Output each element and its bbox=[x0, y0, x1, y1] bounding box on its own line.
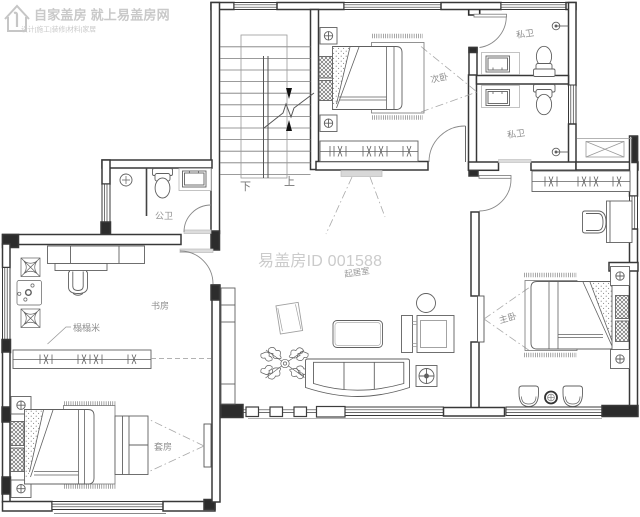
svg-text:榻榻米: 榻榻米 bbox=[73, 322, 100, 333]
svg-text:书房: 书房 bbox=[151, 300, 169, 311]
svg-text:套房: 套房 bbox=[154, 441, 172, 452]
svg-text:公卫: 公卫 bbox=[155, 211, 173, 221]
svg-text:上: 上 bbox=[284, 175, 295, 188]
svg-text:易盖房ID 001588: 易盖房ID 001588 bbox=[258, 252, 382, 270]
svg-text:设计|施工|装修|材料|家居: 设计|施工|装修|材料|家居 bbox=[21, 25, 96, 34]
svg-text:自家盖房 就上易盖房网: 自家盖房 就上易盖房网 bbox=[34, 8, 170, 23]
svg-text:下: 下 bbox=[240, 181, 251, 193]
